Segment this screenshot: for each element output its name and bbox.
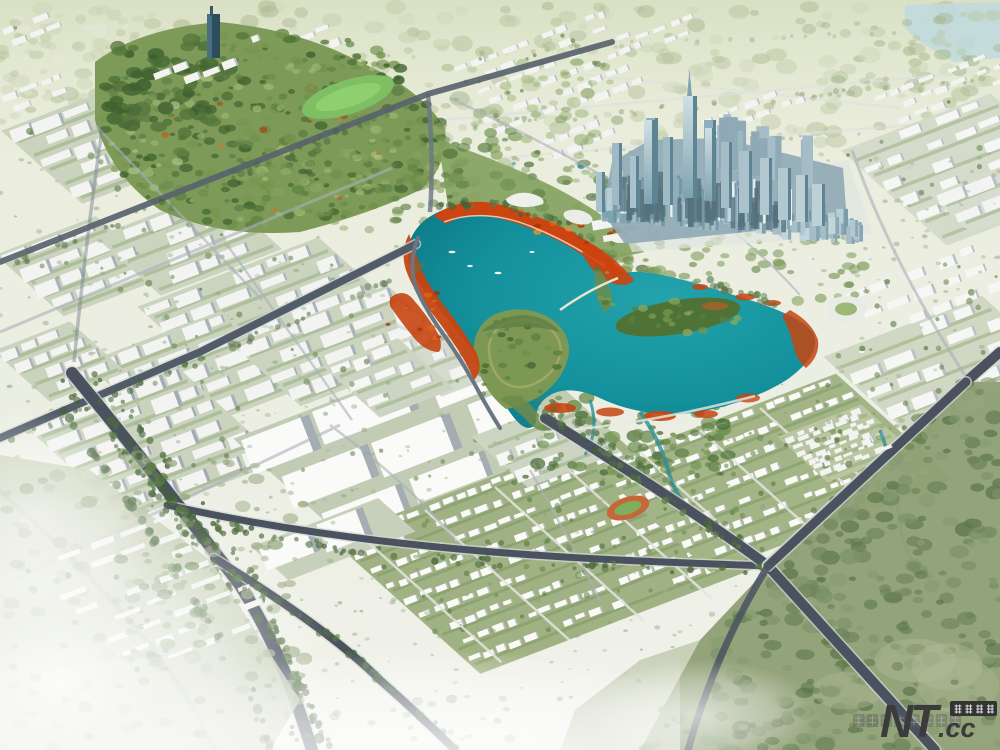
svg-text:.cc: .cc <box>938 713 976 743</box>
svg-text:NT: NT <box>880 695 942 747</box>
